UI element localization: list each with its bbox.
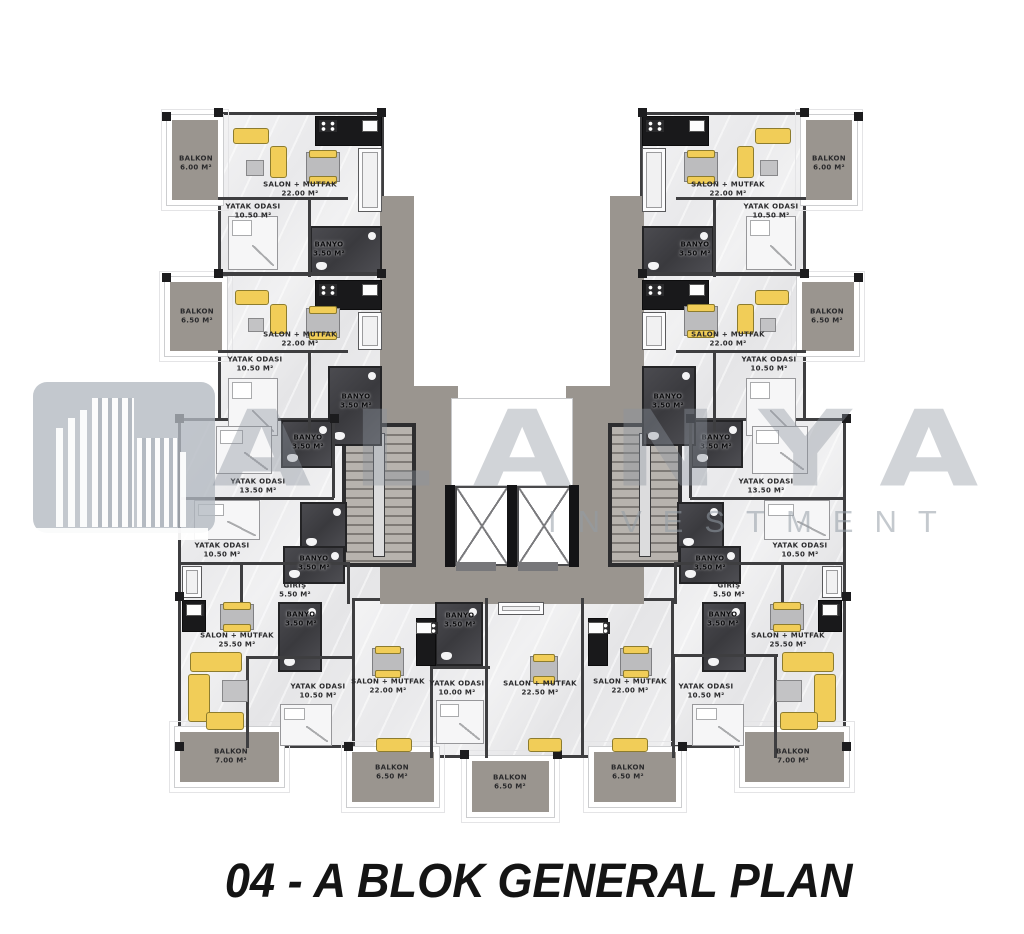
room-label: BALKON 6.00 M² (812, 154, 846, 172)
elevator-column (445, 485, 455, 567)
room-label: BANYO 3.50 M² (700, 433, 732, 451)
fridge-sink-unit (642, 148, 666, 212)
sink-unit (822, 566, 842, 598)
sofa (376, 738, 412, 752)
column (175, 742, 184, 751)
column (842, 592, 851, 601)
kitchen-counter (315, 116, 382, 146)
dining-table (530, 656, 558, 682)
sofa (612, 738, 648, 752)
room-label: BALKON 6.50 M² (611, 763, 645, 781)
room-label: SALON + MUTFAK 22.00 M² (263, 180, 337, 198)
coffee-table (248, 318, 264, 332)
room-label: BALKON 6.50 M² (375, 763, 409, 781)
sofa (782, 652, 834, 672)
dining-table (684, 152, 718, 182)
page-title: 04 - A BLOK GENERAL PLAN (225, 856, 853, 909)
column (854, 273, 863, 282)
bed (216, 426, 272, 474)
room-label: BALKON 7.00 M² (214, 747, 248, 765)
column (175, 592, 184, 601)
wall (485, 598, 488, 758)
dining-table (372, 648, 404, 676)
bed (746, 216, 796, 270)
column (842, 414, 851, 423)
floor-plan-page: BALKON 6.00 M² SALON + MUTFAK 22.00 M² Y… (0, 0, 1024, 934)
wall (781, 564, 784, 604)
room-label: YATAK ODASI 13.50 M² (231, 477, 286, 495)
coffee-table (776, 680, 802, 702)
coffee-table (760, 160, 778, 176)
dining-table (620, 648, 652, 676)
fridge-sink-unit (642, 312, 666, 350)
dining-table (220, 604, 254, 630)
bed (692, 704, 744, 746)
entrance-hall (380, 566, 644, 604)
sofa (737, 146, 754, 178)
column (330, 414, 339, 423)
sofa (190, 652, 242, 672)
room-label: BANYO 3.50 M² (313, 240, 345, 258)
wall (218, 272, 384, 276)
kitchen-counter (642, 116, 709, 146)
room-label: YATAK ODASI 10.50 M² (679, 682, 734, 700)
column (854, 112, 863, 121)
column (678, 742, 687, 751)
sofa (235, 290, 269, 305)
column (175, 414, 184, 423)
sofa (233, 128, 269, 144)
wall (672, 654, 778, 657)
column (162, 273, 171, 282)
sink-unit (498, 602, 544, 615)
dining-table (306, 152, 340, 182)
room-label: BANYO 3.50 M² (285, 610, 317, 628)
bed (228, 216, 278, 270)
room-label: BANYO 3.50 M² (694, 554, 726, 572)
kitchen-counter (416, 618, 436, 666)
wall (581, 598, 584, 758)
room-label: SALON + MUTFAK 25.50 M² (751, 631, 825, 649)
wall (676, 350, 806, 353)
sink-unit (182, 566, 202, 598)
elevator-left (455, 486, 509, 566)
wall (246, 656, 249, 748)
elevator-column (569, 485, 579, 567)
room-label: BALKON 6.00 M² (179, 154, 213, 172)
room-label: SALON + MUTFAK 22.00 M² (263, 330, 337, 348)
corridor-left (380, 196, 414, 426)
sofa (755, 128, 791, 144)
column (686, 414, 695, 423)
kitchen-counter (588, 618, 608, 666)
dining-table (770, 604, 804, 630)
room-label: BANYO 3.50 M² (652, 392, 684, 410)
room-label: YATAK ODASI 10.50 M² (773, 541, 828, 559)
column (377, 269, 386, 278)
kitchen-counter (818, 600, 842, 632)
room-label: BANYO 3.50 M² (340, 392, 372, 410)
wall (347, 564, 350, 604)
wc-stack (677, 502, 724, 552)
elevator-right (517, 486, 571, 566)
bed (194, 500, 260, 540)
room-label: YATAK ODASI 10.50 M² (195, 541, 250, 559)
room-label: YATAK ODASI 10.50 M² (742, 355, 797, 373)
room-label: BANYO 3.50 M² (444, 611, 476, 629)
column (460, 750, 469, 759)
room-label: GİRİŞ 5.50 M² (279, 581, 311, 599)
wall (640, 272, 806, 276)
coffee-table (246, 160, 264, 176)
room-label: SALON + MUTFAK 25.50 M² (200, 631, 274, 649)
bed (752, 426, 808, 474)
wall (246, 656, 354, 659)
elevator-column (507, 485, 517, 567)
wc-stack (300, 502, 347, 552)
wall (713, 197, 716, 277)
column (800, 269, 809, 278)
column (638, 108, 647, 117)
wall (674, 564, 677, 604)
sofa (270, 146, 287, 178)
sofa (780, 712, 818, 730)
coffee-table (222, 680, 248, 702)
column (377, 108, 386, 117)
room-label: SALON + MUTFAK 22.00 M² (351, 677, 425, 695)
fridge-sink-unit (358, 312, 382, 350)
wall (308, 197, 311, 277)
room-label: BALKON 6.50 M² (810, 307, 844, 325)
sofa (755, 290, 789, 305)
column (800, 108, 809, 117)
room-label: BANYO 3.50 M² (298, 554, 330, 572)
room-label: YATAK ODASI 10.50 M² (226, 202, 281, 220)
column (214, 108, 223, 117)
room-label: SALON + MUTFAK 22.00 M² (691, 330, 765, 348)
room-label: SALON + MUTFAK 22.50 M² (503, 679, 577, 697)
column (162, 112, 171, 121)
column (214, 269, 223, 278)
wall (774, 654, 777, 758)
wall (672, 654, 675, 758)
kitchen-counter (182, 600, 206, 632)
bed (764, 500, 830, 540)
sofa (206, 712, 244, 730)
elevator-sill (518, 562, 558, 571)
wall (218, 350, 348, 353)
bed (436, 700, 484, 744)
room-label: YATAK ODASI 13.50 M² (739, 477, 794, 495)
room-label: BANYO 3.50 M² (679, 240, 711, 258)
elevator-sill (456, 562, 496, 571)
room-label: YATAK ODASI 10.50 M² (228, 355, 283, 373)
bed (280, 704, 332, 746)
wall (332, 418, 335, 498)
room-label: YATAK ODASI 10.50 M² (744, 202, 799, 220)
room-label: BALKON 7.00 M² (776, 747, 810, 765)
corridor-right (610, 196, 644, 426)
wall (430, 666, 490, 669)
column (344, 742, 353, 751)
room-label: SALON + MUTFAK 22.00 M² (593, 677, 667, 695)
room-label: BANYO 3.50 M² (292, 433, 324, 451)
room-label: SALON + MUTFAK 22.00 M² (691, 180, 765, 198)
wall (240, 564, 243, 604)
wall (689, 418, 692, 498)
room-label: BANYO 3.50 M² (707, 610, 739, 628)
room-label: YATAK ODASI 10.00 M² (430, 679, 485, 697)
sofa (528, 738, 562, 752)
room-label: BALKON 6.50 M² (493, 773, 527, 791)
fridge-sink-unit (358, 148, 382, 212)
room-label: GİRİŞ 5.50 M² (713, 581, 745, 599)
light-court (451, 398, 573, 486)
room-label: YATAK ODASI 10.50 M² (291, 682, 346, 700)
room-label: BALKON 6.50 M² (180, 307, 214, 325)
column (842, 742, 851, 751)
column (638, 269, 647, 278)
